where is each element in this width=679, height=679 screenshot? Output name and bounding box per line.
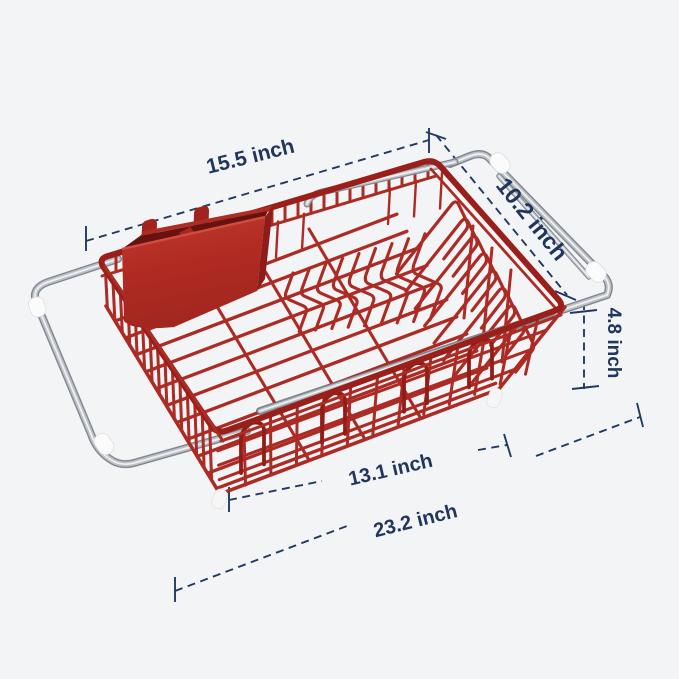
svg-text:4.8 inch: 4.8 inch	[603, 308, 624, 379]
